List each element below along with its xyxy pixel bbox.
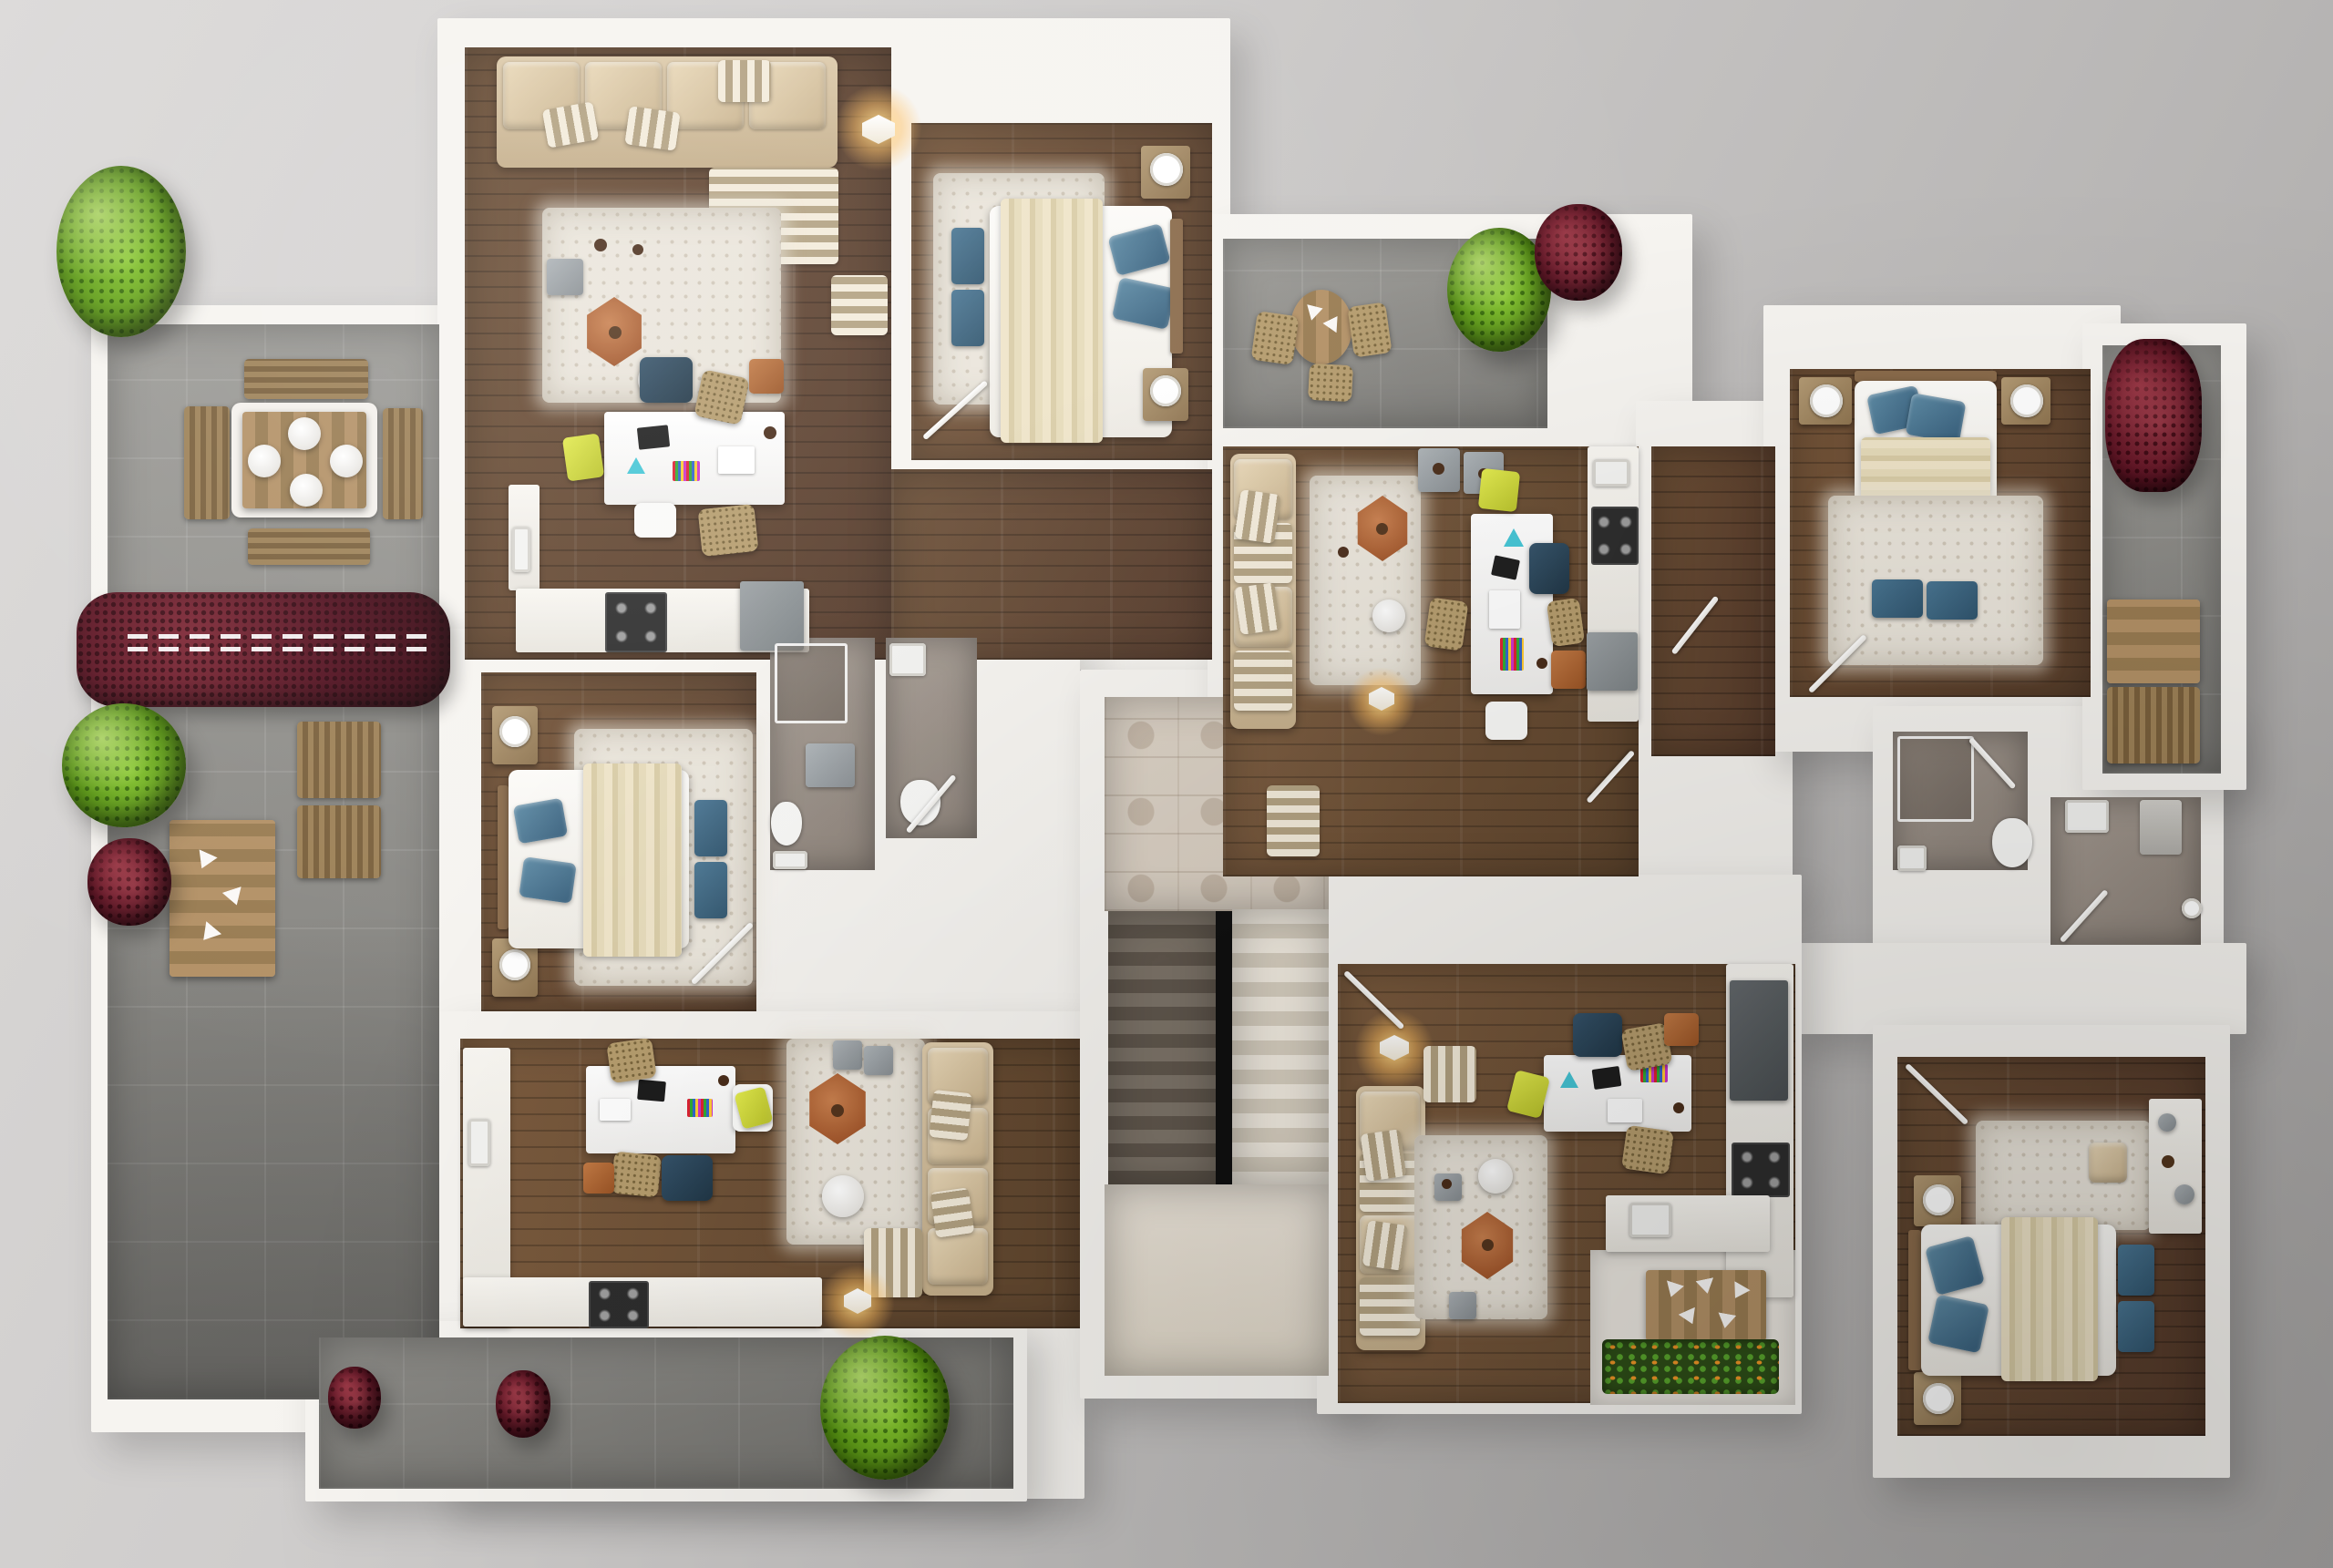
- balcony-cabinet: [2107, 600, 2200, 683]
- chair-wicker: [1250, 311, 1299, 365]
- laptop: [637, 1080, 666, 1102]
- striped-pillow: [929, 1090, 971, 1141]
- color-chart: [1500, 638, 1524, 671]
- ottoman-blue: [2118, 1245, 2154, 1296]
- basket-terracotta: [1664, 1013, 1699, 1046]
- plant-red: [2105, 339, 2202, 492]
- toiletry: [2174, 1184, 2194, 1204]
- headboard: [1908, 1230, 1921, 1370]
- plate: [290, 474, 323, 507]
- striped-pillow: [1234, 489, 1280, 544]
- stool-gray: [1449, 1292, 1476, 1319]
- kitchen-sink: [1593, 459, 1629, 487]
- paper: [1489, 590, 1520, 629]
- stove: [605, 592, 667, 652]
- cup: [1338, 547, 1349, 558]
- stair-flight-down: [1108, 911, 1216, 1184]
- striped-ottoman: [1267, 785, 1320, 856]
- kitchen-sink: [512, 527, 530, 572]
- toiletry: [2162, 1155, 2174, 1168]
- table-lamp: [499, 716, 530, 747]
- plant-red: [328, 1367, 381, 1429]
- chair-wicker: [1547, 598, 1586, 648]
- plate: [330, 445, 363, 477]
- stove: [589, 1281, 649, 1328]
- armchair-navy: [640, 357, 693, 403]
- cup: [632, 244, 643, 255]
- side-table: [1372, 600, 1405, 632]
- stove: [1732, 1143, 1790, 1197]
- pillow-blue: [1927, 1295, 1989, 1354]
- bush-green: [62, 703, 186, 827]
- bath-sink: [1897, 845, 1927, 871]
- table-lamp: [1923, 1184, 1954, 1215]
- hedge-railing: [128, 634, 437, 639]
- bath-vanity: [806, 743, 855, 787]
- balcony-cabinet: [2107, 687, 2200, 764]
- striped-pillow: [930, 1187, 975, 1237]
- chair-wicker: [694, 369, 750, 425]
- chair-wicker: [697, 504, 758, 557]
- plant-red: [496, 1370, 550, 1438]
- stool-terracotta: [1551, 651, 1586, 689]
- table-decor: [1376, 523, 1388, 535]
- chair-wicker: [1308, 364, 1353, 402]
- ottoman-blue: [2118, 1301, 2154, 1352]
- table-decor: [831, 1104, 844, 1117]
- color-chart: [673, 461, 700, 481]
- cup: [1673, 1102, 1684, 1113]
- table-decor: [1482, 1239, 1494, 1251]
- chair-yellow: [1478, 468, 1520, 512]
- table-lamp: [499, 949, 530, 980]
- flower-planter: [1602, 1339, 1779, 1394]
- stool-gray: [833, 1040, 862, 1070]
- paper: [600, 1099, 631, 1121]
- striped-pillow: [1235, 582, 1281, 635]
- fridge: [740, 581, 804, 651]
- kitchen-sink: [468, 1119, 490, 1166]
- ottoman-blue: [951, 290, 984, 346]
- boiler: [2140, 800, 2182, 855]
- cup: [1442, 1179, 1452, 1189]
- blanket: [2001, 1217, 2098, 1381]
- bench-left: [184, 406, 230, 519]
- sofa-cushion: [928, 1228, 988, 1285]
- side-table: [822, 1175, 864, 1217]
- shower: [775, 643, 848, 723]
- striped-pillow: [1361, 1129, 1407, 1182]
- cube-seat: [297, 805, 381, 878]
- shower-drain: [2182, 898, 2202, 918]
- stool-terracotta: [583, 1163, 614, 1194]
- bath-sink: [773, 851, 807, 869]
- stove: [1591, 507, 1639, 565]
- cup: [594, 239, 607, 251]
- stair-well-gap: [1216, 911, 1232, 1184]
- sofa-cushion-striped: [1360, 1277, 1420, 1336]
- hedge-railing: [128, 647, 437, 651]
- toilet: [771, 802, 802, 845]
- ottoman-blue: [1872, 579, 1923, 618]
- fridge: [1587, 632, 1638, 691]
- cup: [764, 426, 776, 439]
- toilet: [1992, 818, 2032, 867]
- cup: [1433, 463, 1444, 475]
- blanket: [1001, 199, 1103, 443]
- headboard: [498, 785, 509, 929]
- floor-hallway-top-left: [891, 469, 1212, 660]
- armchair-navy: [1573, 1013, 1622, 1057]
- fridge: [1730, 980, 1788, 1101]
- stair-flight-up: [1232, 909, 1329, 1184]
- table-lamp: [1150, 153, 1183, 186]
- shower: [1897, 736, 1974, 822]
- rug-center-right: [1310, 476, 1421, 685]
- ottoman-blue: [1927, 581, 1978, 620]
- striped-pillow: [1362, 1220, 1409, 1271]
- chair-white: [1485, 702, 1527, 740]
- chair-white: [634, 503, 676, 538]
- sofa-cushion-striped: [1234, 651, 1292, 711]
- blanket: [583, 764, 682, 957]
- terrace-left-shadow: [108, 911, 439, 1399]
- bath-sink: [2065, 800, 2109, 833]
- plate: [248, 445, 281, 477]
- basket-terracotta: [749, 359, 784, 394]
- laptop: [1592, 1066, 1622, 1090]
- side-table: [1478, 1159, 1513, 1194]
- floor-plan-render: [0, 0, 2333, 1568]
- ottoman-blue: [694, 800, 727, 856]
- striped-pillow: [718, 60, 771, 102]
- desk-top-left: [604, 412, 785, 505]
- paper: [1608, 1099, 1642, 1122]
- table-lamp: [1150, 375, 1181, 406]
- plant-red: [87, 838, 171, 926]
- table-lamp: [2010, 384, 2043, 417]
- stool-gray: [864, 1046, 893, 1075]
- bench-bottom: [248, 528, 370, 565]
- striped-ottoman: [831, 275, 888, 335]
- chair-yellow: [562, 433, 604, 481]
- armchair-navy: [1529, 543, 1569, 594]
- chair-wicker: [1423, 597, 1468, 651]
- paper: [718, 446, 755, 474]
- striped-ottoman: [1423, 1046, 1476, 1102]
- color-chart: [687, 1099, 713, 1117]
- table-lamp: [1810, 384, 1843, 417]
- chair-wicker: [606, 1038, 657, 1084]
- plant-red: [1535, 204, 1622, 301]
- ottoman-blue: [694, 862, 727, 918]
- laptop: [637, 425, 670, 449]
- table-decor: [609, 326, 622, 339]
- stool-gray: [547, 259, 583, 295]
- floor-stair-landing: [1105, 1184, 1329, 1376]
- chair-wicker: [1621, 1125, 1674, 1175]
- round-table: [1290, 290, 1352, 364]
- plank-table: [170, 820, 275, 977]
- ottoman-blue: [951, 228, 984, 284]
- cup: [718, 1075, 729, 1086]
- plate: [288, 417, 321, 450]
- cup: [1536, 658, 1547, 669]
- striped-pillow: [624, 106, 680, 150]
- cube-seat: [297, 722, 381, 798]
- wall-connector-right: [1786, 943, 2246, 1034]
- bench-right: [383, 408, 423, 519]
- island-sink: [1629, 1203, 1671, 1237]
- pouf-beige: [2089, 1143, 2127, 1183]
- chair-wicker: [1347, 302, 1392, 357]
- headboard: [1170, 219, 1183, 354]
- chair-wicker: [611, 1151, 663, 1197]
- bench-top: [244, 359, 368, 399]
- table-lamp: [1923, 1383, 1954, 1414]
- bath-sink: [889, 643, 926, 676]
- bush-green: [820, 1336, 950, 1480]
- armchair-navy: [662, 1155, 713, 1201]
- toiletry: [2158, 1113, 2176, 1132]
- pillow-blue: [519, 856, 577, 904]
- bush-green: [57, 166, 186, 337]
